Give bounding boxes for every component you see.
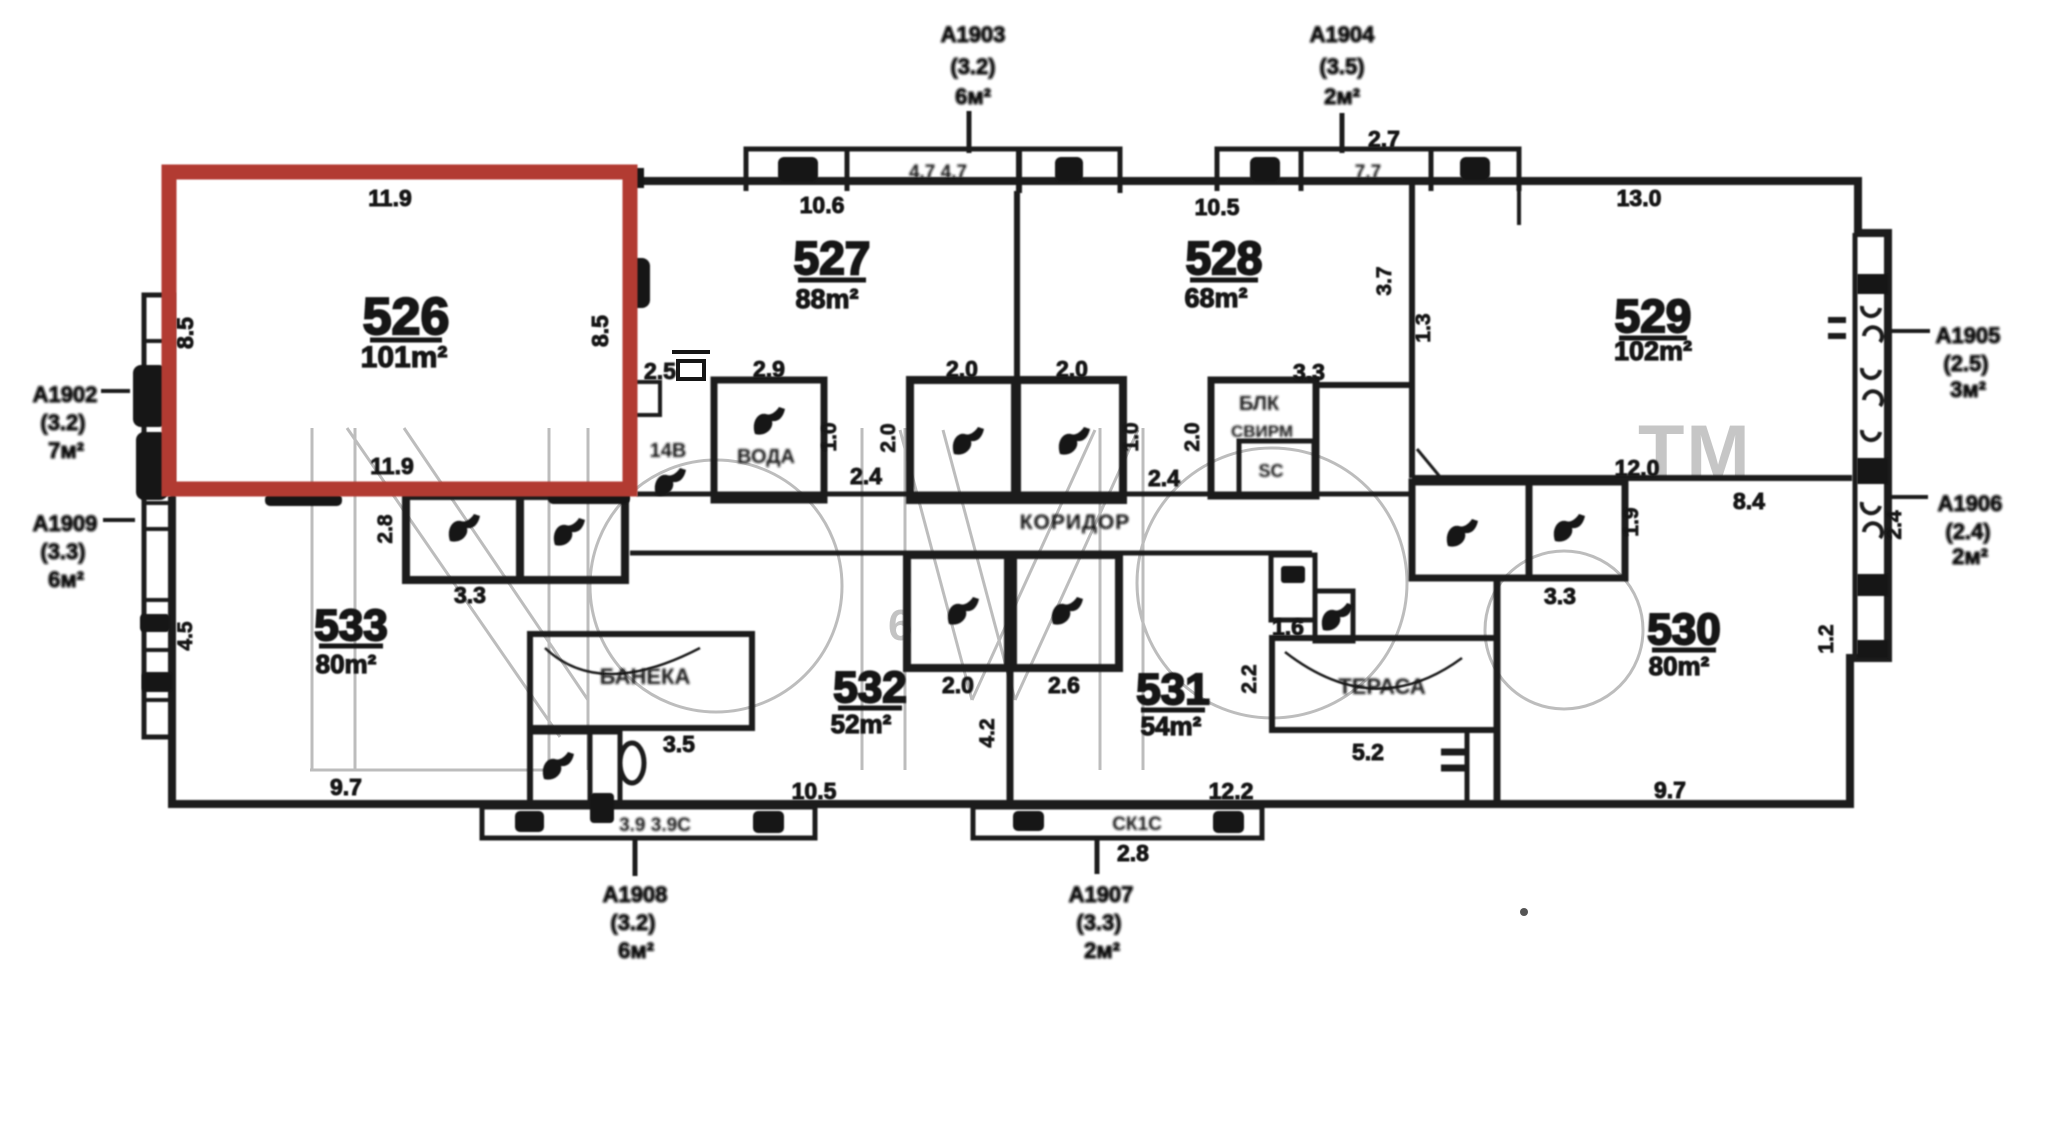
svg-text:12.0: 12.0 xyxy=(1615,455,1660,481)
svg-text:4.5: 4.5 xyxy=(174,621,197,651)
svg-text:СВИРМ: СВИРМ xyxy=(1231,422,1293,441)
svg-text:2.5: 2.5 xyxy=(644,358,676,384)
svg-text:2.4: 2.4 xyxy=(1883,510,1906,540)
svg-text:530: 530 xyxy=(1647,605,1720,654)
svg-text:(3.3): (3.3) xyxy=(40,539,85,564)
svg-text:528: 528 xyxy=(1186,232,1263,284)
svg-text:2.8: 2.8 xyxy=(1117,840,1149,866)
svg-text:А1904: А1904 xyxy=(1310,22,1376,47)
svg-text:4.7 4.7: 4.7 4.7 xyxy=(909,162,967,183)
svg-text:2м²: 2м² xyxy=(1084,938,1120,963)
svg-text:SC: SC xyxy=(1258,461,1283,481)
svg-text:88m²: 88m² xyxy=(795,284,858,314)
svg-text:526: 526 xyxy=(363,288,450,346)
svg-text:4.2: 4.2 xyxy=(976,718,999,747)
svg-text:А1903: А1903 xyxy=(941,22,1006,47)
svg-text:А1909: А1909 xyxy=(33,511,98,536)
svg-text:(2.4): (2.4) xyxy=(1945,519,1990,544)
svg-text:(2.5): (2.5) xyxy=(1943,351,1988,376)
svg-text:А1908: А1908 xyxy=(603,882,668,907)
svg-text:1.2: 1.2 xyxy=(1815,624,1838,653)
svg-text:(3.2): (3.2) xyxy=(950,54,995,79)
svg-text:9.7: 9.7 xyxy=(1654,777,1686,803)
svg-text:1.9: 1.9 xyxy=(1620,507,1643,536)
svg-text:КОРИДОР: КОРИДОР xyxy=(1020,511,1131,534)
svg-text:БЛК: БЛК xyxy=(1239,393,1280,415)
svg-text:527: 527 xyxy=(794,232,871,284)
svg-text:14В: 14В xyxy=(650,440,687,462)
svg-text:2м²: 2м² xyxy=(1952,544,1988,569)
svg-text:11.9: 11.9 xyxy=(370,453,414,479)
svg-text:10.6: 10.6 xyxy=(800,192,845,218)
svg-text:3.7: 3.7 xyxy=(1373,266,1396,295)
svg-text:10.5: 10.5 xyxy=(1195,194,1240,220)
svg-text:1.0: 1.0 xyxy=(818,422,841,451)
svg-text:2м²: 2м² xyxy=(1324,84,1360,109)
svg-text:2.0: 2.0 xyxy=(942,672,974,698)
svg-text:80m²: 80m² xyxy=(316,649,377,679)
svg-text:2.9: 2.9 xyxy=(753,356,785,382)
svg-text:52m²: 52m² xyxy=(831,709,892,739)
svg-text:2.6: 2.6 xyxy=(1048,672,1080,698)
svg-text:3.3: 3.3 xyxy=(454,582,486,608)
svg-text:7м²: 7м² xyxy=(48,438,84,463)
svg-text:80m²: 80m² xyxy=(1649,651,1710,681)
svg-text:6м²: 6м² xyxy=(48,567,84,592)
svg-text:101m²: 101m² xyxy=(361,341,448,374)
svg-text:А1905: А1905 xyxy=(1936,323,2001,348)
svg-text:6м²: 6м² xyxy=(618,938,654,963)
svg-text:3.9 3.9С: 3.9 3.9С xyxy=(619,815,691,836)
svg-text:СК1С: СК1С xyxy=(1112,814,1162,835)
svg-text:2.0: 2.0 xyxy=(946,356,978,382)
svg-text:2.0: 2.0 xyxy=(1181,422,1204,451)
svg-text:3м²: 3м² xyxy=(1950,377,1986,402)
svg-text:9.7: 9.7 xyxy=(330,774,362,800)
svg-text:8.4: 8.4 xyxy=(1733,488,1765,514)
svg-text:А1902: А1902 xyxy=(33,382,98,407)
svg-text:1.6: 1.6 xyxy=(1272,614,1304,640)
svg-text:13.0: 13.0 xyxy=(1617,185,1662,211)
svg-text:1.0: 1.0 xyxy=(1120,422,1143,451)
svg-text:(3.3): (3.3) xyxy=(1076,910,1121,935)
svg-text:2.2: 2.2 xyxy=(1238,664,1261,693)
svg-text:7.7: 7.7 xyxy=(1355,162,1381,183)
svg-text:БАНЕКА: БАНЕКА xyxy=(600,664,691,689)
svg-text:(3.2): (3.2) xyxy=(610,910,655,935)
svg-text:532: 532 xyxy=(833,663,906,712)
svg-text:(3.5): (3.5) xyxy=(1319,54,1364,79)
svg-text:3.3: 3.3 xyxy=(1293,359,1325,385)
svg-text:(3.2): (3.2) xyxy=(40,410,85,435)
svg-text:5.2: 5.2 xyxy=(1352,739,1384,765)
svg-text:10.5: 10.5 xyxy=(792,778,837,804)
svg-text:ТЕРАСА: ТЕРАСА xyxy=(1338,674,1426,699)
svg-text:531: 531 xyxy=(1136,665,1209,714)
svg-text:2.4: 2.4 xyxy=(1148,465,1180,491)
svg-text:3.5: 3.5 xyxy=(663,731,695,757)
svg-text:11.9: 11.9 xyxy=(368,185,412,211)
svg-text:TM: TM xyxy=(1638,410,1752,495)
svg-text:529: 529 xyxy=(1615,290,1692,342)
svg-text:2.0: 2.0 xyxy=(877,423,900,452)
svg-text:8.5: 8.5 xyxy=(587,315,613,347)
svg-text:А1907: А1907 xyxy=(1069,882,1134,907)
svg-text:68m²: 68m² xyxy=(1184,283,1247,313)
svg-text:12.2: 12.2 xyxy=(1209,778,1254,804)
svg-text:2.8: 2.8 xyxy=(374,514,397,544)
svg-text:3.3: 3.3 xyxy=(1544,583,1576,609)
svg-text:ВОДА: ВОДА xyxy=(737,446,795,468)
svg-text:1.3: 1.3 xyxy=(1412,313,1435,342)
svg-text:2.7: 2.7 xyxy=(1368,126,1400,152)
svg-text:2.0: 2.0 xyxy=(1056,356,1088,382)
svg-text:6м²: 6м² xyxy=(955,84,991,109)
svg-text:А1906: А1906 xyxy=(1938,491,2003,516)
svg-text:54m²: 54m² xyxy=(1141,711,1202,741)
svg-text:2.4: 2.4 xyxy=(850,463,882,489)
svg-text:533: 533 xyxy=(314,601,387,650)
